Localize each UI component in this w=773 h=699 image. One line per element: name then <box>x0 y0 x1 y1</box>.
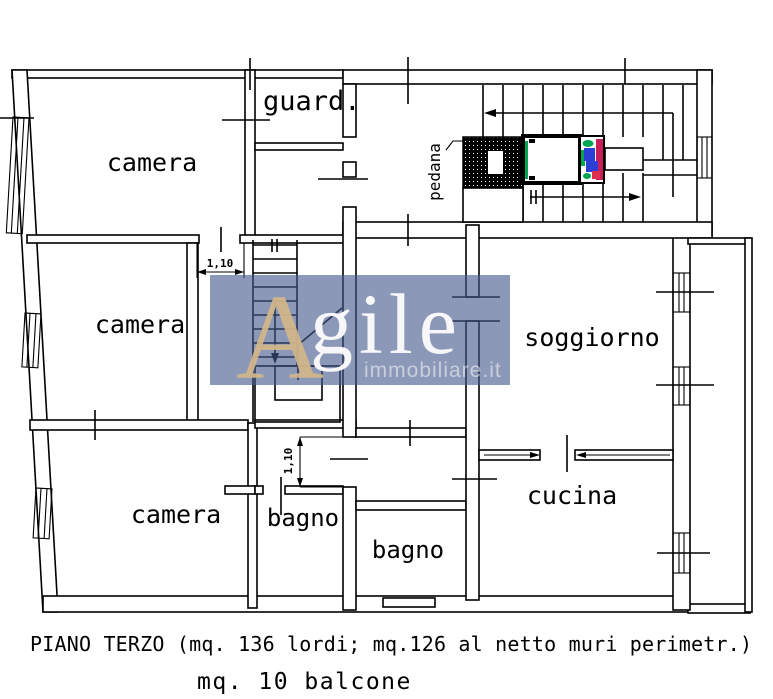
room-label-camera-3: camera <box>131 500 221 529</box>
floor-plan-image: 1,10 1,10 camera guard. camera camera ba… <box>0 0 773 699</box>
watermark-word-rest: gile <box>310 276 463 372</box>
dim-label-v: 1,10 <box>282 448 295 475</box>
caption-line-1: PIANO TERZO (mq. 136 lordi; mq.126 al ne… <box>30 632 752 656</box>
pedana-lower-step <box>463 188 523 222</box>
stair-landing <box>605 148 643 170</box>
room-label-guardaroba: guard. <box>263 86 361 117</box>
caption-line-2: mq. 10 balcone <box>197 669 412 695</box>
room-label-bagno-1: bagno <box>267 504 339 532</box>
watermark-tagline: immobiliare.it <box>364 359 502 382</box>
dimension-v: 1,10 <box>282 437 342 487</box>
floor-plan-svg: 1,10 1,10 camera guard. camera camera ba… <box>0 0 773 699</box>
stair-up-arrow <box>484 109 496 117</box>
elevator <box>523 136 580 183</box>
room-label-cucina: cucina <box>527 481 617 510</box>
room-label-camera-1: camera <box>107 148 197 177</box>
caption: PIANO TERZO (mq. 136 lordi; mq.126 al ne… <box>30 632 752 695</box>
pedana-leader-line <box>446 141 463 150</box>
pedana-label: pedana <box>425 143 444 201</box>
watermark: A gile immobiliare.it <box>210 270 510 405</box>
stairlift-chair <box>580 136 604 183</box>
dim-label-h: 1,10 <box>207 257 234 270</box>
room-label-soggiorno: soggiorno <box>524 323 659 352</box>
room-label-bagno-2: bagno <box>372 536 444 564</box>
stair-direction-arrow <box>629 193 641 201</box>
room-label-camera-2: camera <box>95 310 185 339</box>
condo-staircase <box>446 85 697 222</box>
pedana-hatch-hole <box>488 151 503 174</box>
